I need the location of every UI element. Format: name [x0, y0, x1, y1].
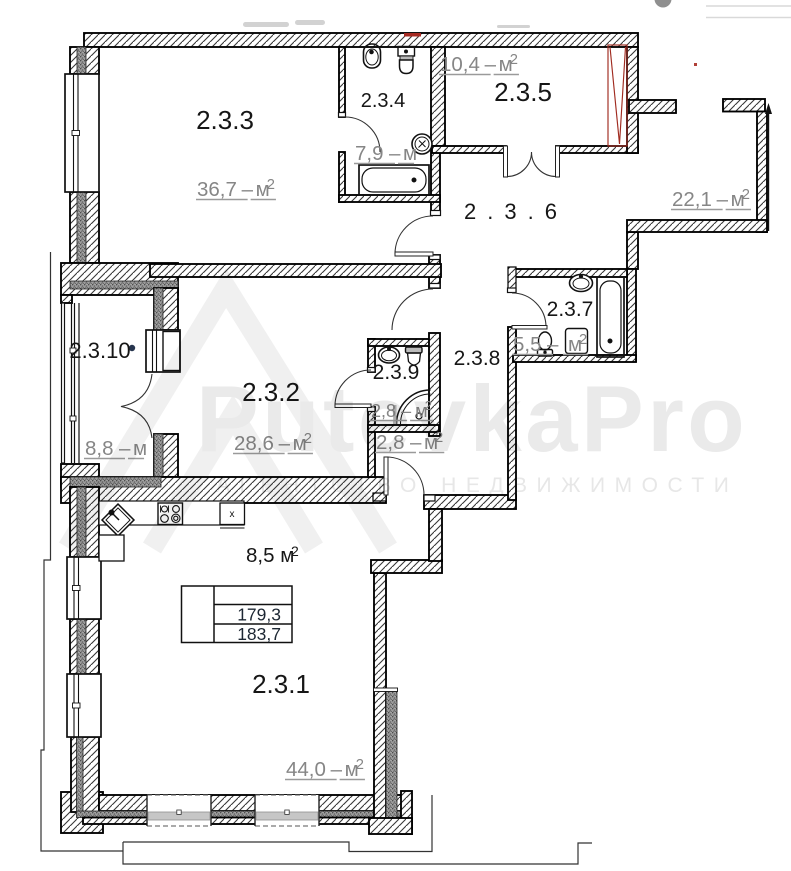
- svg-text:179,3: 179,3: [237, 605, 281, 625]
- svg-text:2.3.6: 2.3.6: [464, 199, 568, 224]
- svg-text:2.3.10: 2.3.10: [69, 338, 130, 363]
- svg-text:–: –: [389, 142, 401, 165]
- svg-text:2: 2: [267, 177, 275, 193]
- svg-text:–: –: [485, 53, 497, 76]
- svg-text:x: x: [230, 509, 235, 520]
- svg-text:2.3.7: 2.3.7: [547, 298, 594, 321]
- svg-text:2.3.5: 2.3.5: [494, 77, 552, 107]
- svg-text:АГЕНТСТВО НЕДВИЖИМОСТИ: АГЕНТСТВО НЕДВИЖИМОСТИ: [216, 474, 738, 497]
- svg-text:2.3.1: 2.3.1: [252, 669, 310, 699]
- svg-text:PutevkaPro: PutevkaPro: [196, 366, 748, 471]
- svg-text:–: –: [547, 333, 559, 356]
- svg-text:44,0: 44,0: [286, 758, 326, 781]
- svg-text:10,4: 10,4: [440, 53, 480, 76]
- svg-text:8,5 м: 8,5 м: [246, 544, 294, 567]
- svg-text:м: м: [403, 142, 417, 165]
- svg-text:2: 2: [356, 757, 364, 773]
- svg-text:2.3.3: 2.3.3: [196, 105, 254, 135]
- svg-text:2: 2: [742, 187, 750, 203]
- svg-text:–: –: [717, 188, 729, 211]
- svg-text:183,7: 183,7: [237, 624, 281, 644]
- svg-text:2.3.4: 2.3.4: [361, 90, 405, 112]
- svg-text:5,5: 5,5: [513, 333, 542, 356]
- svg-text:36,7: 36,7: [197, 178, 237, 201]
- svg-text:7,9: 7,9: [355, 142, 384, 165]
- svg-text:2: 2: [291, 543, 299, 559]
- svg-text:2: 2: [579, 332, 587, 348]
- svg-text:2: 2: [510, 52, 518, 68]
- svg-text:–: –: [242, 178, 254, 201]
- svg-text:–: –: [331, 758, 343, 781]
- svg-text:8,8: 8,8: [85, 437, 114, 460]
- svg-text:22,1: 22,1: [672, 188, 712, 211]
